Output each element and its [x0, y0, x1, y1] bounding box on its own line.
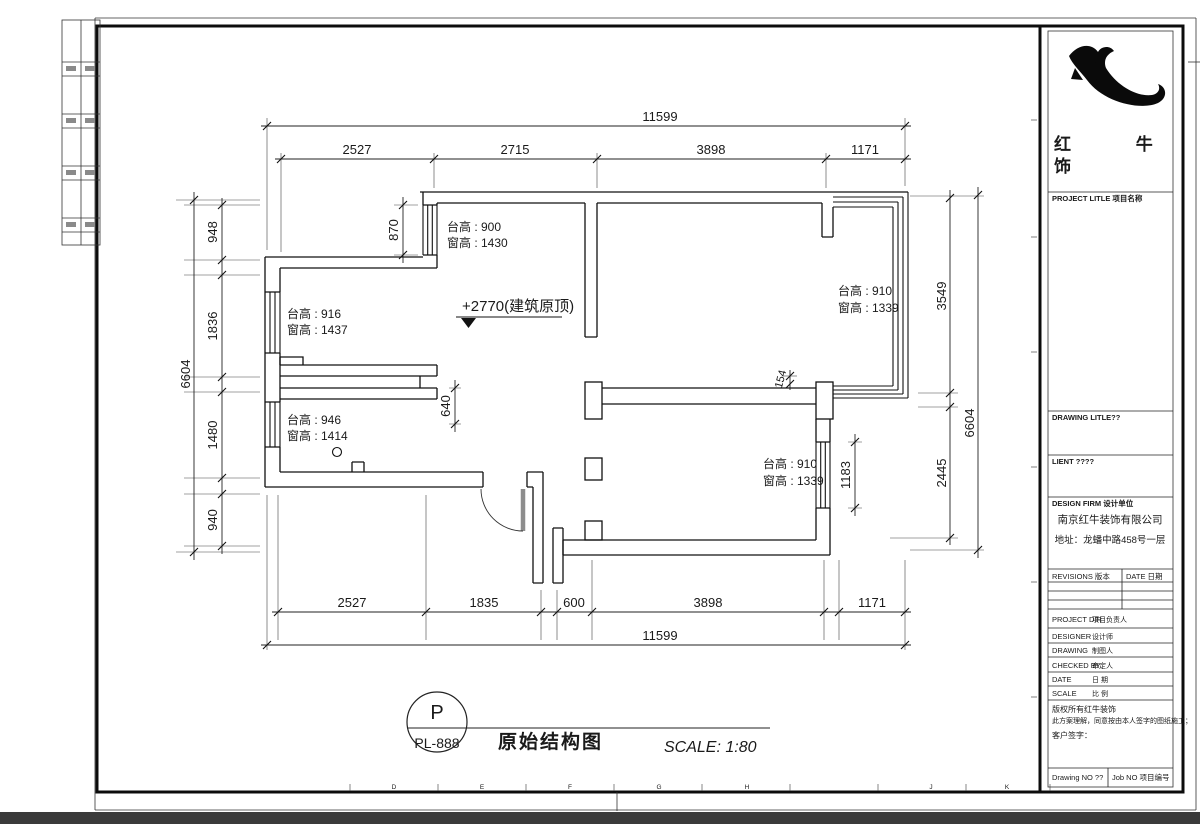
drawing-title-label: DRAWING LITLE??	[1052, 413, 1121, 422]
dim-top-overall: 11599	[642, 109, 677, 124]
dim-bottom-seg-3: 600	[563, 595, 585, 610]
dim-bottom-seg-5: 1171	[858, 595, 886, 610]
scale-label: SCALE	[1052, 689, 1077, 698]
grid-letter-d: D	[392, 784, 397, 791]
fold-table	[62, 20, 100, 245]
stamp-letter: P	[430, 702, 443, 724]
dim-hallway: 640	[438, 395, 453, 417]
design-firm-label: DESIGN FIRM 设计单位	[1052, 498, 1134, 508]
grid-letter-e: E	[480, 784, 485, 791]
elevation-marker-icon	[461, 318, 476, 328]
revisions-label: REVISIONS 版本	[1052, 571, 1110, 581]
elevation-note: +2770(建筑原顶)	[462, 298, 574, 315]
dim-left-seg-4: 940	[205, 509, 220, 531]
scale-note: SCALE: 1:80	[664, 739, 757, 756]
entry-door	[481, 489, 523, 531]
project-title-label: PROJECT LITLE 项目名称	[1052, 193, 1143, 203]
revisions-date-label: DATE 日期	[1126, 572, 1163, 581]
grid-letter-f: F	[568, 784, 572, 791]
window-note-kitchen-1: 台高 : 900	[447, 219, 501, 234]
floor-plan-canvas: 11599 2527 2715 3898 1171 2527 1835 600 …	[0, 0, 1200, 824]
drawing-stamp: P PL-888 原始结构图 SCALE: 1:80	[407, 692, 770, 756]
window-note-left1-2: 窗高 : 1437	[287, 322, 348, 337]
dim-bottom-seg-2: 1835	[470, 595, 499, 610]
checked-by-label-zh: 审定人	[1092, 661, 1113, 670]
dim-bottom-overall: 11599	[642, 628, 677, 643]
grid-letter-j: J	[929, 784, 932, 791]
grid-letter-k: K	[1005, 784, 1010, 791]
window-note-left2-2: 窗高 : 1414	[287, 428, 348, 443]
date-label-zh: 日 期	[1092, 676, 1108, 684]
door-swing-arc	[481, 489, 523, 531]
dim-right-seg-2: 2445	[934, 459, 949, 488]
plan-annotations: 台高 : 900 窗高 : 1430 台高 : 916 窗高 : 1437 台高…	[287, 219, 899, 488]
dim-left-overall: 6604	[178, 360, 193, 389]
window-note-bed1-2: 窗高 : 1339	[838, 300, 899, 315]
copyright-line-1: 版权所有红牛装饰	[1052, 704, 1116, 714]
dim-kitchen-window: 870	[386, 219, 401, 241]
copyright-line-2: 此方案理解，同意按由本人签字的图纸施工；	[1052, 716, 1192, 725]
drawing-sheet: 11599 2527 2715 3898 1171 2527 1835 600 …	[0, 0, 1200, 824]
dim-right-overall: 6604	[962, 409, 977, 438]
dim-top-seg-2: 2715	[501, 142, 530, 157]
window-note-left2-1: 台高 : 946	[287, 412, 341, 427]
window-note-bed2-1: 台高 : 910	[763, 456, 817, 471]
dim-left-seg-2: 1836	[205, 312, 220, 341]
window-note-bed1-1: 台高 : 910	[838, 283, 892, 298]
dim-bottom-seg-4: 3898	[694, 595, 723, 610]
plan-walls	[265, 192, 908, 583]
rednew-bull-logo-icon	[1069, 46, 1165, 106]
dim-top-seg-4: 1171	[851, 142, 879, 157]
window-note-left1-1: 台高 : 916	[287, 306, 341, 321]
date-label: DATE	[1052, 675, 1071, 684]
window-note-bed2-2: 窗高 : 1339	[763, 473, 824, 488]
company-address: 地址：龙蟠中路458号一层	[1055, 534, 1166, 546]
sheet-frame	[0, 18, 1200, 824]
project-dir-label-zh: 项目负责人	[1092, 615, 1127, 624]
customer-sign-label: 客户签字：	[1052, 730, 1092, 740]
bottom-bar	[0, 812, 1200, 824]
stamp-code: PL-888	[414, 735, 459, 751]
company-name: 南京红牛装饰有限公司	[1058, 513, 1163, 526]
drawing-by-label: DRAWING	[1052, 646, 1088, 655]
dim-bottom-seg-1: 2527	[338, 595, 367, 610]
scale-label-zh: 比 例	[1092, 689, 1108, 698]
brand-name-line2: 饰	[1054, 156, 1071, 176]
drawing-title: 原始结构图	[498, 730, 603, 753]
designer-label: DESIGNER	[1052, 632, 1092, 641]
title-block: 红 牛 装 饰 PROJECT LITLE 项目名称 DRAWING LITLE	[1048, 31, 1200, 787]
dim-bedroom-window: 1183	[838, 461, 853, 489]
dim-top-seg-3: 3898	[697, 142, 726, 157]
job-no-label: Job NO 项目编号	[1112, 772, 1170, 782]
brand-name-line1: 红 牛 装	[1054, 134, 1200, 154]
drawing-by-label-zh: 制图人	[1092, 646, 1113, 655]
window-note-kitchen-2: 窗高 : 1430	[447, 235, 508, 250]
client-label: LIENT ????	[1052, 457, 1094, 466]
designer-label-zh: 设计师	[1092, 632, 1113, 641]
dim-top-seg-1: 2527	[343, 142, 372, 157]
dim-right-seg-1: 3549	[934, 282, 949, 311]
drawing-no-label: Drawing NO ??	[1052, 773, 1103, 782]
grid-letter-g: G	[656, 784, 661, 791]
dim-left-seg-1: 948	[205, 221, 220, 243]
extension-lines	[176, 118, 984, 650]
dim-left-seg-3: 1480	[205, 421, 220, 450]
grid-letter-h: H	[745, 784, 750, 791]
